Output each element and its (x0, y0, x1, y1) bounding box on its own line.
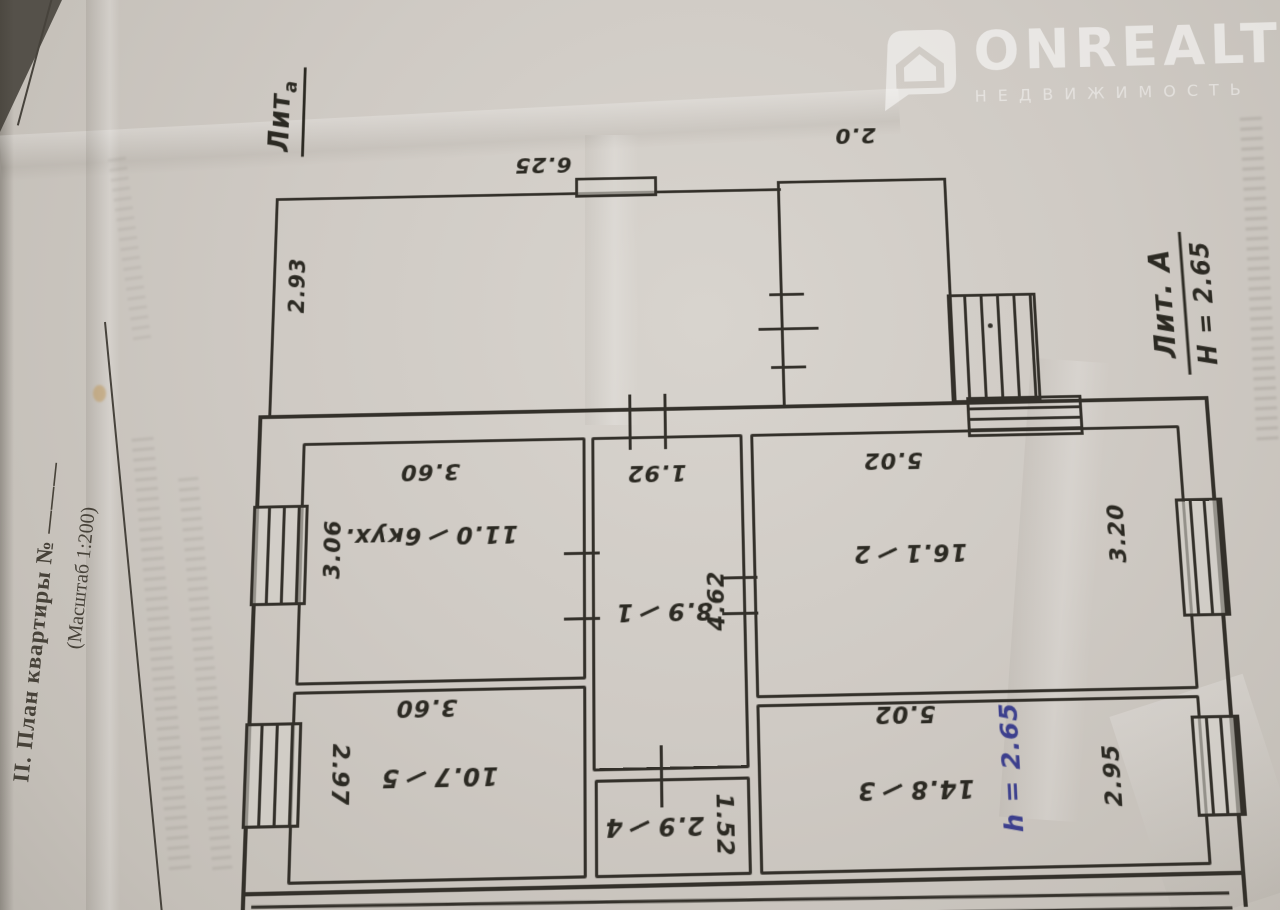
photo-of-floor-plan: II. План квартиры № ——— (Масштаб 1:200) (0, 0, 1280, 910)
house-pin-icon (877, 25, 961, 119)
room3-number: 3 (857, 776, 876, 805)
room5-area: 10.7 (433, 761, 498, 791)
fraction-bar (883, 784, 903, 796)
room2-number: 2 (853, 540, 872, 568)
floor-plan-drawing: 6.25 2.93 2.0 3.60 3.06 11.0 6кух. 1.92 … (0, 32, 1280, 910)
wall-annex-top (777, 178, 946, 184)
fraction-bar (630, 821, 650, 833)
dim-room3-depth: 2.95 (1098, 743, 1128, 806)
dim-veranda-depth: 2.93 (284, 257, 311, 314)
door-tick-annex (769, 293, 804, 296)
door-tick-veranda-corridor (663, 394, 667, 449)
litera-outbuilding-text: Лит (262, 93, 297, 152)
wall-main-right (1204, 396, 1248, 907)
corridor-area: 8.9 (667, 597, 713, 626)
wall-veranda-left (268, 198, 279, 419)
room6-number: 6кух. (343, 522, 421, 551)
area-label-room5: 10.7 5 (381, 761, 499, 792)
fraction-bar (640, 606, 659, 617)
watermark: ONREALT НЕДВИЖИМОСТЬ (877, 17, 1280, 120)
room4-area: 2.9 (657, 811, 704, 841)
window-room3-right (1191, 715, 1248, 817)
watermark-subtitle: НЕДВИЖИМОСТЬ (974, 79, 1280, 106)
dim-room5-depth: 2.97 (325, 743, 353, 806)
fraction-bar (429, 530, 448, 541)
fraction-bar (878, 548, 897, 559)
litera-outbuilding-label: Лита (262, 68, 307, 158)
lower-figure-line (251, 891, 1229, 908)
room2-area: 16.1 (904, 538, 968, 567)
porch-step-dot (988, 323, 993, 328)
area-label-room4: 2.9 4 (604, 811, 704, 842)
corridor-number: 1 (615, 598, 633, 626)
wall-main-left (240, 415, 262, 910)
area-label-room3: 14.8 3 (857, 774, 976, 806)
dim-room5-width: 3.60 (395, 693, 457, 721)
door-tick-annex (771, 365, 806, 369)
dim-corridor-width: 1.92 (626, 459, 686, 485)
lower-figure-line (253, 906, 1233, 910)
litera-outbuilding-sub: а (279, 80, 302, 93)
porch-steps-upper (947, 293, 1042, 403)
door-tick-veranda-corridor (628, 395, 631, 450)
area-label-room2: 16.1 2 (853, 538, 968, 568)
room3-area: 14.8 (909, 774, 975, 804)
window-room5-left (242, 722, 303, 829)
dim-veranda-width: 6.25 (514, 152, 572, 176)
watermark-brand: ONREALT (973, 17, 1280, 79)
dim-room6-width: 3.60 (400, 458, 460, 484)
area-label-corridor: 8.9 1 (615, 597, 713, 627)
litera-main-label: Лит. А Н = 2.65 (1140, 231, 1225, 375)
dim-room3-width: 5.02 (873, 700, 936, 728)
room5-number: 5 (381, 763, 400, 792)
room4-number: 4 (604, 812, 622, 842)
dim-annex-width: 2.0 (834, 123, 876, 147)
window-room6-left (250, 505, 309, 607)
area-label-room6: 11.0 6кух. (343, 520, 518, 551)
dim-room2-depth: 3.20 (1103, 503, 1133, 563)
room-3 (756, 695, 1211, 875)
window-room2-right (1175, 498, 1232, 617)
dim-room4-depth: 1.52 (710, 793, 738, 857)
wall-veranda-top (276, 188, 781, 201)
fraction-bar (406, 772, 426, 784)
door-leaf-annex (758, 327, 818, 331)
room6-area: 11.0 (455, 520, 518, 549)
dim-room2-width: 5.02 (862, 447, 923, 473)
window-veranda-top (575, 176, 657, 197)
